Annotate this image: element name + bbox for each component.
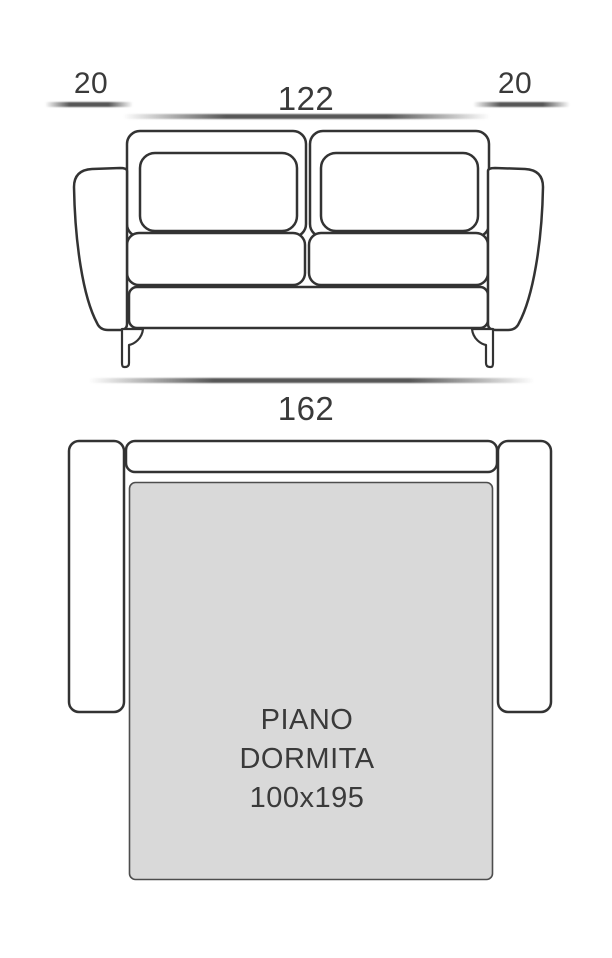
front-back-cushion-left — [140, 153, 297, 231]
sleeping-area-label: PIANO DORMITA 100x195 — [131, 701, 483, 818]
sleeping-area-label-line3: 100x195 — [131, 779, 483, 818]
front-armrest-left — [74, 168, 127, 330]
sofa-dimensions-diagram: 20 122 20 162 — [0, 0, 612, 958]
front-seat-cushion-right — [309, 233, 488, 285]
top-armrest-left — [69, 441, 124, 712]
sleeping-area-label-line1: PIANO — [131, 701, 483, 740]
front-armrest-right — [488, 168, 543, 330]
front-base — [129, 287, 488, 328]
front-seat-cushion-left — [127, 233, 305, 285]
top-sleeping-surface — [130, 483, 493, 880]
top-armrest-right — [498, 441, 551, 712]
front-leg-left — [122, 329, 143, 367]
sleeping-area-label-line2: DORMITA — [131, 740, 483, 779]
front-view — [74, 131, 543, 367]
top-backrest — [126, 441, 497, 472]
front-back-cushion-right — [321, 153, 478, 231]
front-leg-right — [472, 329, 493, 367]
